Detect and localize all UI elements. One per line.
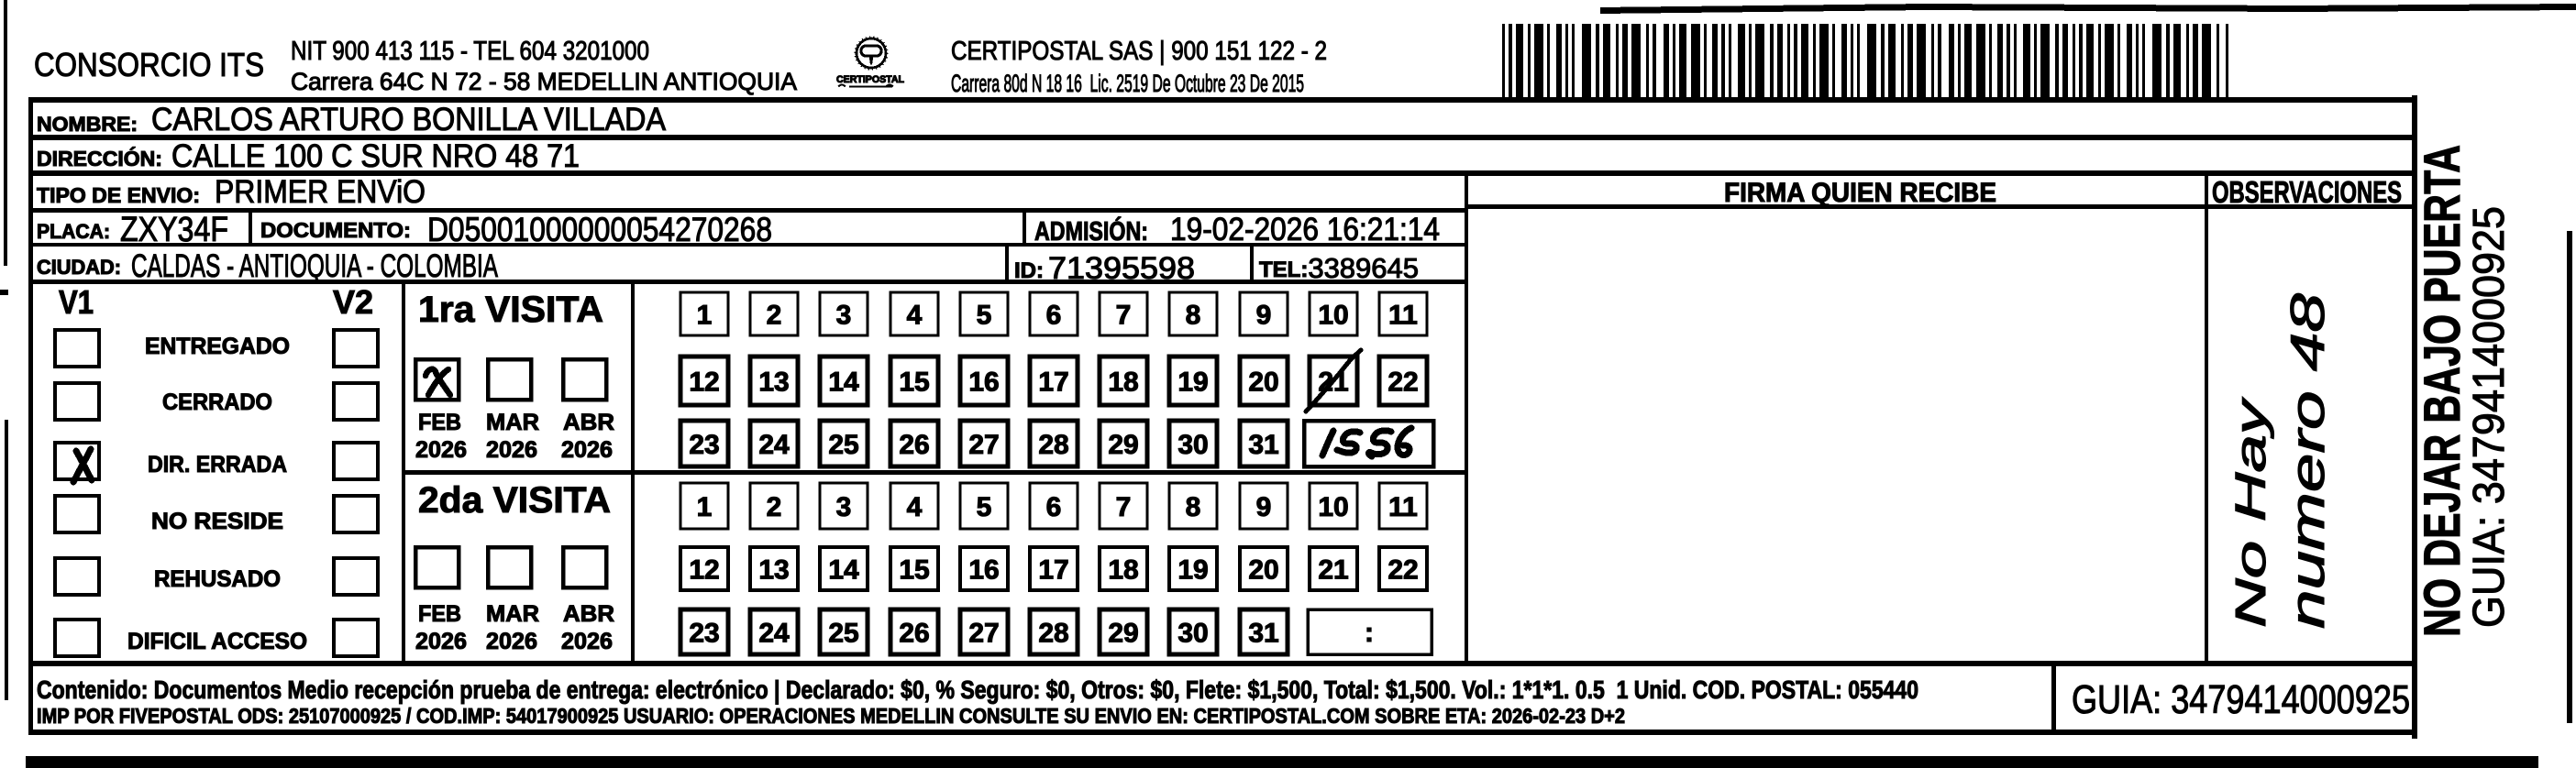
svg-text:2: 2 <box>767 301 782 331</box>
svg-text:24: 24 <box>758 430 790 460</box>
svg-text:2da VISITA: 2da VISITA <box>418 480 611 521</box>
svg-text:NIT 900 413 115 - TEL 604 3201: NIT 900 413 115 - TEL 604 3201000 <box>291 37 649 66</box>
svg-text:CALDAS - ANTIOQUIA - COLOMBIA: CALDAS - ANTIOQUIA - COLOMBIA <box>131 248 498 284</box>
svg-text:28: 28 <box>1038 430 1068 460</box>
svg-text:12: 12 <box>689 368 719 398</box>
svg-text:8: 8 <box>1186 492 1201 522</box>
svg-text:10: 10 <box>1318 301 1348 331</box>
svg-text:FEB: FEB <box>418 410 461 435</box>
svg-text:22: 22 <box>1388 555 1418 586</box>
svg-text:ADMISIÓN:: ADMISIÓN: <box>1034 215 1148 247</box>
svg-text:1: 1 <box>697 301 713 331</box>
svg-text:No Hay: No Hay <box>2227 396 2274 628</box>
svg-text:DIRECCIÓN:: DIRECCIÓN: <box>37 146 162 170</box>
svg-text:REHUSADO: REHUSADO <box>154 566 281 592</box>
svg-text:CERTIPOSTAL SAS | 900 151 122: CERTIPOSTAL SAS | 900 151 122 - 2 <box>951 37 1327 66</box>
svg-text:15: 15 <box>899 368 929 398</box>
svg-text:DIFICIL ACCESO: DIFICIL ACCESO <box>127 629 307 654</box>
svg-text:7: 7 <box>1116 301 1132 331</box>
svg-text:Carrera 64C N 72 - 58 MEDELLIN: Carrera 64C N 72 - 58 MEDELLIN ANTIOQUIA <box>291 68 797 95</box>
svg-text:30: 30 <box>1177 430 1208 460</box>
svg-text:ENTREGADO: ENTREGADO <box>145 334 290 359</box>
svg-text:14: 14 <box>828 555 859 586</box>
svg-text:27: 27 <box>968 430 999 460</box>
svg-text:8: 8 <box>1186 301 1201 331</box>
svg-text:4: 4 <box>907 301 923 331</box>
svg-text:FIRMA QUIEN RECIBE: FIRMA QUIEN RECIBE <box>1724 178 1996 208</box>
svg-text:18: 18 <box>1108 368 1138 398</box>
svg-text:17: 17 <box>1038 555 1068 586</box>
svg-text:9: 9 <box>1256 301 1272 331</box>
svg-text:V2: V2 <box>333 283 373 321</box>
svg-text:9: 9 <box>1256 492 1272 522</box>
svg-text:V1: V1 <box>59 283 94 321</box>
svg-text:ABR: ABR <box>563 410 614 435</box>
svg-text:FEB: FEB <box>418 601 461 627</box>
svg-text:16: 16 <box>968 368 999 398</box>
svg-text:5: 5 <box>977 301 992 331</box>
svg-text:2026: 2026 <box>561 629 613 654</box>
svg-text:27: 27 <box>968 619 999 649</box>
svg-text:NOMBRE:: NOMBRE: <box>37 113 138 136</box>
svg-text:18: 18 <box>1108 555 1138 586</box>
svg-text:11: 11 <box>1388 492 1418 522</box>
svg-text:MAR: MAR <box>486 601 539 627</box>
svg-text:NO RESIDE: NO RESIDE <box>151 509 283 534</box>
svg-text:25: 25 <box>828 430 858 460</box>
svg-text:19: 19 <box>1177 368 1208 398</box>
svg-text:CERTIPOSTAL: CERTIPOSTAL <box>836 74 904 85</box>
svg-text:21: 21 <box>1318 555 1348 586</box>
svg-text:28: 28 <box>1038 619 1068 649</box>
svg-text:NO DEJAR BAJO PUERTA: NO DEJAR BAJO PUERTA <box>2413 145 2471 637</box>
svg-text:CONSORCIO ITS: CONSORCIO ITS <box>34 46 264 83</box>
svg-text:19-02-2026 16:21:14: 19-02-2026 16:21:14 <box>1170 212 1440 247</box>
svg-text:24: 24 <box>758 619 790 649</box>
svg-text:10: 10 <box>1318 492 1348 522</box>
svg-text:2026: 2026 <box>486 437 537 463</box>
svg-text:GUIA: 3479414000925: GUIA: 3479414000925 <box>2072 677 2410 722</box>
svg-text:numero 48: numero 48 <box>2282 293 2335 629</box>
svg-text:20: 20 <box>1248 555 1278 586</box>
svg-text:6: 6 <box>1046 492 1062 522</box>
svg-text:ABR: ABR <box>563 601 614 627</box>
svg-text:5: 5 <box>977 492 992 522</box>
svg-text:20: 20 <box>1248 368 1278 398</box>
svg-text:23: 23 <box>689 430 719 460</box>
svg-text:Contenido: Documentos Medio re: Contenido: Documentos Medio recepción pr… <box>37 675 1918 704</box>
svg-text::: : <box>1365 618 1374 648</box>
svg-text:13: 13 <box>758 555 789 586</box>
svg-text:29: 29 <box>1108 430 1138 460</box>
svg-text:1ra VISITA: 1ra VISITA <box>418 290 603 330</box>
svg-text:ZXY34F: ZXY34F <box>120 211 228 249</box>
svg-text:3: 3 <box>836 301 852 331</box>
svg-text:12: 12 <box>689 555 719 586</box>
svg-text:3: 3 <box>836 492 852 522</box>
svg-text:2026: 2026 <box>415 437 467 463</box>
svg-text:2026: 2026 <box>561 437 613 463</box>
svg-text:31: 31 <box>1248 619 1278 649</box>
svg-text:TIPO DE ENVIO:: TIPO DE ENVIO: <box>37 183 200 207</box>
svg-text:PRIMER ENViO: PRIMER ENViO <box>215 174 426 210</box>
svg-text:26: 26 <box>899 619 929 649</box>
svg-text:DIR. ERRADA: DIR. ERRADA <box>148 452 287 477</box>
svg-text:22: 22 <box>1388 368 1418 398</box>
svg-text:30: 30 <box>1177 619 1208 649</box>
svg-text:CARLOS ARTURO BONILLA VILLADA: CARLOS ARTURO BONILLA VILLADA <box>151 102 667 137</box>
svg-text:7: 7 <box>1116 492 1132 522</box>
svg-text:CERRADO: CERRADO <box>162 389 272 415</box>
svg-text:26: 26 <box>899 430 929 460</box>
svg-text:Carrera 80d N 18 16 Lic. 2519: Carrera 80d N 18 16 Lic. 2519 De Octubre… <box>951 70 1304 97</box>
svg-text:14: 14 <box>828 368 859 398</box>
svg-text:1: 1 <box>697 492 713 522</box>
svg-text:4: 4 <box>907 492 923 522</box>
svg-text:31: 31 <box>1248 430 1278 460</box>
svg-text:OBSERVACIONES: OBSERVACIONES <box>2212 175 2402 209</box>
svg-text:19: 19 <box>1177 555 1208 586</box>
svg-text:6: 6 <box>1046 301 1062 331</box>
svg-text:13: 13 <box>758 368 789 398</box>
svg-text:2026: 2026 <box>415 629 467 654</box>
svg-text:CIUDAD:: CIUDAD: <box>37 256 121 279</box>
svg-text:11: 11 <box>1388 301 1418 331</box>
svg-text:16: 16 <box>968 555 999 586</box>
svg-text:CALLE 100 C SUR NRO 48 71: CALLE 100 C SUR NRO 48 71 <box>171 138 580 174</box>
svg-text:TEL:3389645: TEL:3389645 <box>1259 252 1419 284</box>
svg-text:23: 23 <box>689 619 719 649</box>
svg-text:2: 2 <box>767 492 782 522</box>
svg-text:29: 29 <box>1108 619 1138 649</box>
svg-text:IMP POR FIVEPOSTAL ODS: 251070: IMP POR FIVEPOSTAL ODS: 25107000925 / CO… <box>37 704 1625 728</box>
svg-text:MAR: MAR <box>486 410 539 435</box>
svg-text:PLACA:: PLACA: <box>37 220 110 243</box>
svg-text:25: 25 <box>828 619 858 649</box>
svg-text:15: 15 <box>899 555 929 586</box>
svg-text:DOCUMENTO:: DOCUMENTO: <box>260 218 411 242</box>
svg-text:GUIA: 3479414000925: GUIA: 3479414000925 <box>2465 206 2514 628</box>
svg-text:2026: 2026 <box>486 629 537 654</box>
svg-text:17: 17 <box>1038 368 1068 398</box>
svg-text:D05001000000054270268: D05001000000054270268 <box>427 211 772 248</box>
